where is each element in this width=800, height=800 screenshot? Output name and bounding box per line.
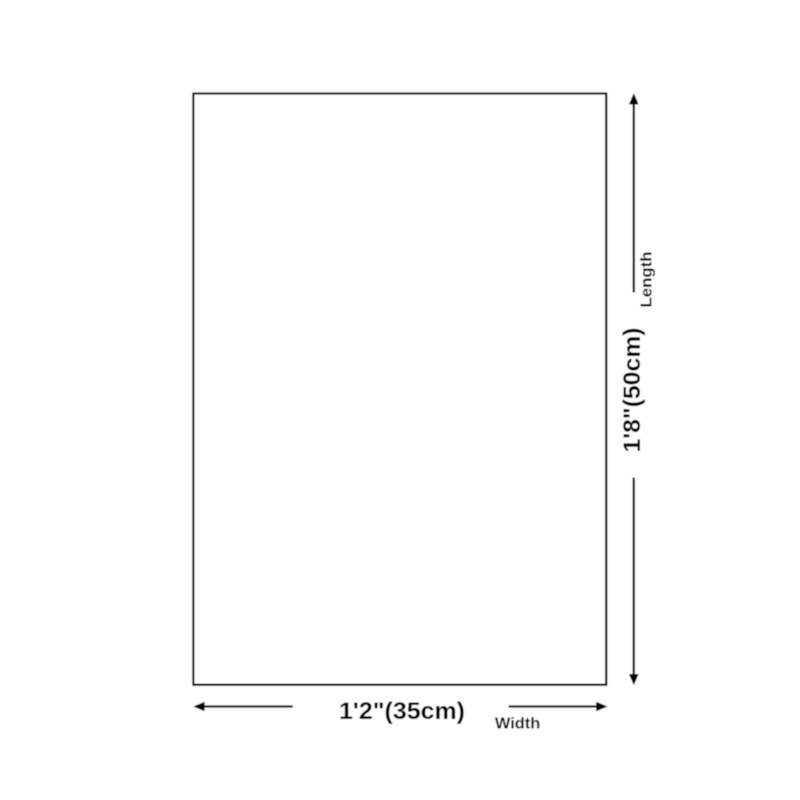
svg-text:1'2"(35cm): 1'2"(35cm): [339, 698, 465, 725]
svg-text:Width: Width: [495, 715, 540, 732]
svg-text:Length: Length: [639, 252, 656, 308]
svg-text:1'8"(50cm): 1'8"(50cm): [619, 328, 646, 453]
